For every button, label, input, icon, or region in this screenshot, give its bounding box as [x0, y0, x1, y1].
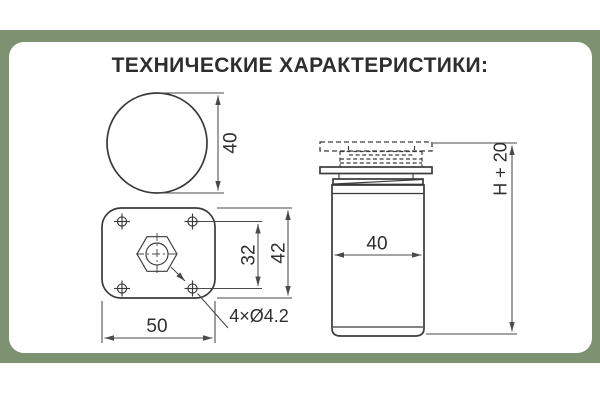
top-view: 40 [107, 93, 242, 193]
leg-body [332, 185, 424, 336]
dim-leg-height: H + 20 [426, 142, 517, 334]
dim-holes-label: 4×Ø4.2 [229, 306, 289, 326]
dim-cap-diameter-label: 40 [221, 132, 242, 153]
dim-plate-width-label: 50 [146, 316, 167, 337]
panel-dashed [320, 142, 432, 151]
side-view: 40 H + 20 [320, 142, 517, 336]
dim-plate-height-label: 42 [269, 242, 290, 263]
cap-circle [107, 93, 207, 193]
dim-hole-spacing-label: 32 [239, 244, 260, 265]
dim-leg-diameter-label: 40 [366, 234, 387, 255]
plate-view: 32 42 50 4×Ø4.2 [102, 208, 292, 343]
dim-leg-height-label: H + 20 [490, 142, 510, 196]
dim-plate-width: 50 [102, 301, 215, 343]
technical-drawing: 40 [0, 0, 600, 400]
page: ТЕХНИЧЕСКИЕ ХАРАКТЕРИСТИКИ: 40 [0, 0, 600, 400]
top-plate [320, 167, 432, 174]
thread-stud [340, 146, 422, 167]
